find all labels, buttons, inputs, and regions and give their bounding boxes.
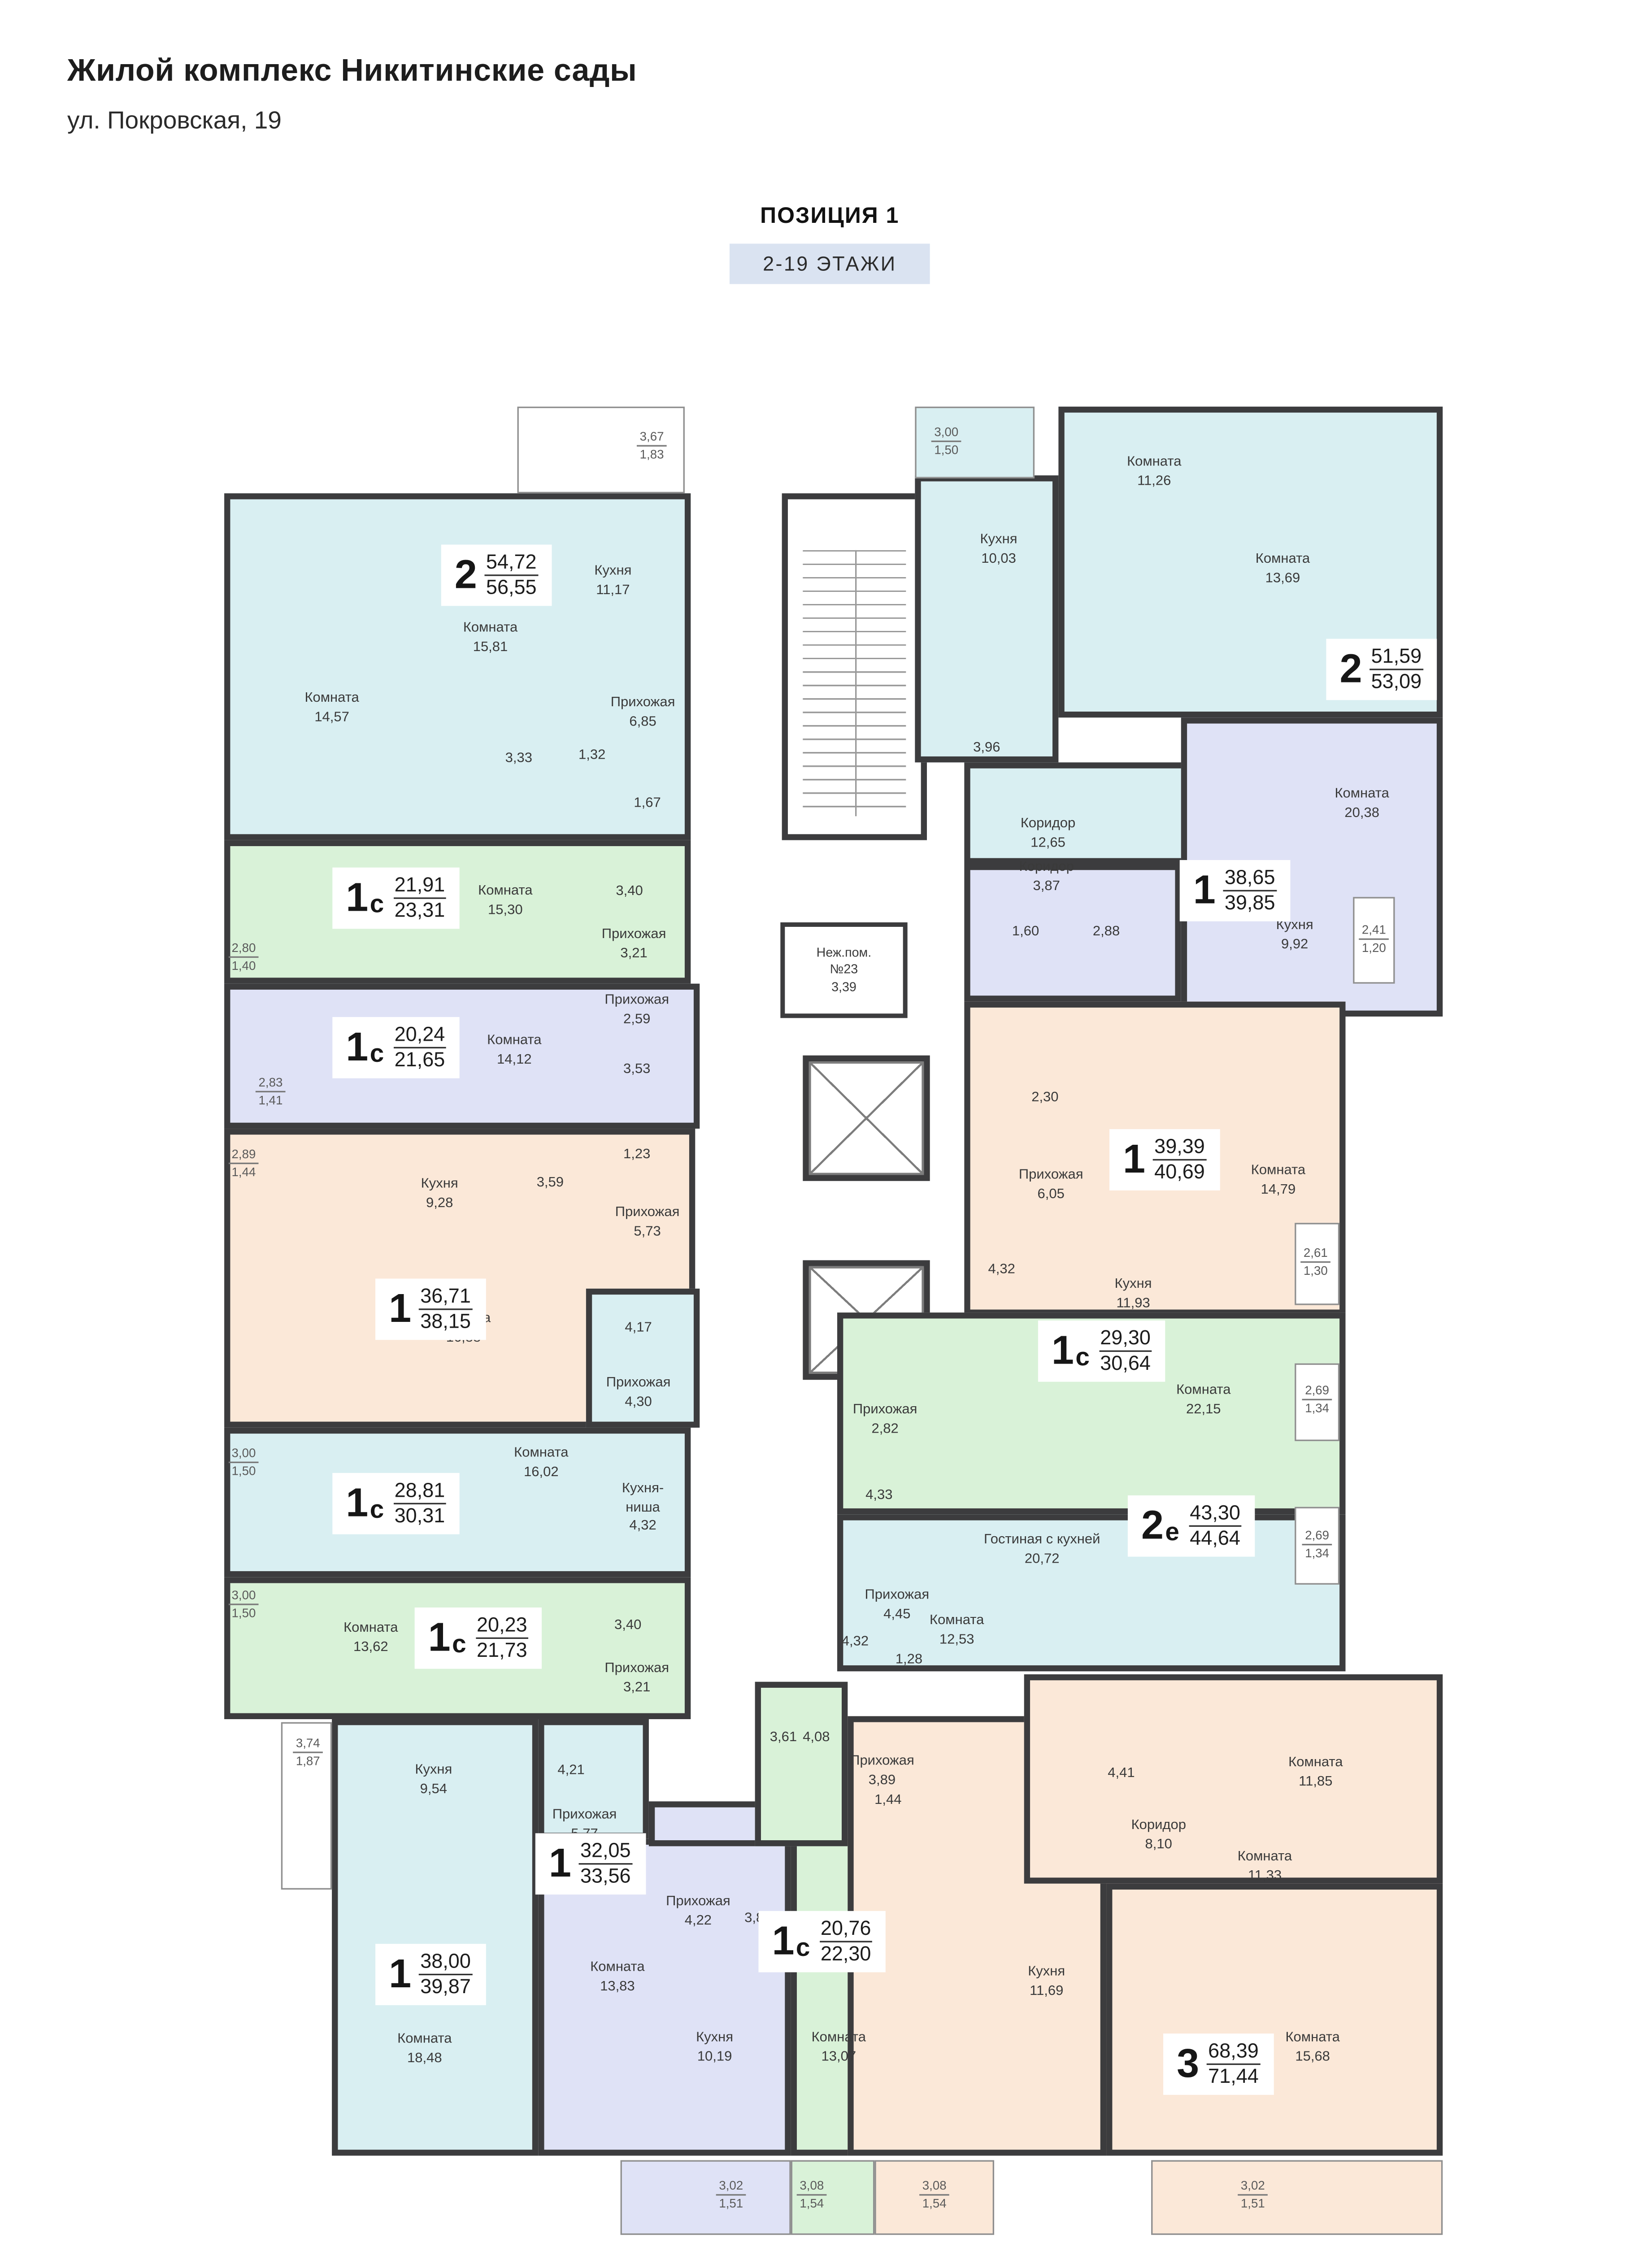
area-fraction: 54,7256,55 [485, 551, 538, 600]
area-fraction: 20,2421,65 [393, 1023, 446, 1073]
room-area: 1,23 [623, 1145, 650, 1164]
room-area: 3,33 [505, 748, 532, 767]
room-label: Прихожая5,73 [615, 1203, 680, 1240]
room-area: 10,19 [696, 2046, 733, 2065]
room-name: Комната [478, 881, 532, 900]
room-name: Комната [304, 688, 359, 707]
room-label: Кухня11,17 [594, 561, 631, 599]
room-label: Кухня10,19 [696, 2028, 733, 2065]
room-name: Кухня [696, 2028, 733, 2046]
room-name: Комната [463, 618, 517, 637]
balcony-area-label: 3,001,50 [229, 1587, 259, 1621]
room-name: Кухня- ниша [622, 1479, 664, 1516]
total-area-value: 44,64 [1188, 1527, 1242, 1551]
room-area: 8,10 [1131, 1834, 1186, 1853]
room-area: 22,15 [1176, 1399, 1230, 1418]
apartment-region-9[interactable] [755, 1682, 848, 1847]
apartment-type-suffix: с [796, 1934, 810, 1967]
balcony-area-label: 3,021,51 [1238, 2178, 1268, 2212]
room-name: Комната [397, 2029, 452, 2048]
apartment-type-suffix: с [1075, 1343, 1090, 1376]
apartment-type-label: 1 [346, 878, 367, 919]
room-area: 11,17 [594, 580, 631, 599]
balcony-area-reduced: 1,44 [229, 1164, 259, 1180]
area-fraction: 39,3940,69 [1153, 1135, 1206, 1185]
floor-plan: Неж.пом. №23 3,39 254,7256,55Кухня11,17К… [0, 0, 1652, 2242]
balcony-area-label: 3,081,54 [797, 2178, 827, 2212]
area-fraction: 51,5953,09 [1369, 645, 1423, 695]
balcony-area-label: 2,801,40 [229, 940, 259, 973]
room-area: 2,82 [853, 1419, 917, 1438]
room-area: 14,57 [304, 707, 359, 726]
total-area-value: 39,87 [419, 1976, 472, 2000]
apartment-typebox: 1с21,9123,31 [332, 868, 460, 930]
balcony-area-reduced: 1,87 [293, 1753, 323, 1769]
room-area: 4,17 [625, 1318, 652, 1337]
area-label: 2,88 [1093, 922, 1120, 941]
living-area-value: 39,39 [1153, 1135, 1206, 1160]
room-area: 16,02 [514, 1462, 568, 1481]
area-fraction: 21,9123,31 [393, 873, 446, 923]
room-area: 2,30 [1031, 1088, 1058, 1107]
room-label: Прихожая3,21 [604, 1659, 669, 1696]
apartment-typebox: 138,6539,85 [1180, 860, 1290, 922]
room-label: Комната16,02 [514, 1443, 568, 1481]
room-area: 1,44 [874, 1790, 901, 1809]
room-area: 1,67 [634, 793, 661, 812]
room-label: Комната13,83 [590, 1958, 644, 1995]
living-area-value: 43,30 [1188, 1501, 1242, 1527]
living-area-value: 38,65 [1223, 866, 1277, 891]
room-label: Комната13,07 [812, 2028, 866, 2065]
room-area: 4,22 [666, 1911, 730, 1929]
room-area: 11,85 [1288, 1772, 1343, 1790]
area-label: 1,60 [1012, 922, 1039, 941]
room-area: 4,41 [1108, 1764, 1135, 1782]
room-label: Прихожая4,22 [666, 1892, 730, 1929]
apartment-type-label: 2 [455, 556, 476, 596]
total-area-value: 71,44 [1207, 2065, 1260, 2090]
total-area-value: 30,64 [1099, 1352, 1152, 1377]
living-area-value: 21,91 [393, 873, 446, 899]
living-area-value: 29,30 [1099, 1326, 1152, 1352]
total-area-value: 22,30 [819, 1942, 872, 1967]
apartment-type-label: 1 [1123, 1140, 1144, 1180]
balcony-area-reduced: 1,50 [229, 1605, 259, 1621]
living-area-value: 68,39 [1207, 2039, 1260, 2065]
total-area-value: 33,56 [579, 1865, 632, 1889]
area-label: 3,33 [505, 748, 532, 767]
balcony-area-full: 3,08 [797, 2178, 827, 2195]
total-area-value: 30,31 [393, 1505, 446, 1529]
apartment-typebox: 132,0533,56 [535, 1833, 646, 1895]
room-area: 3,61 [770, 1728, 797, 1747]
balcony-area-label: 2,891,44 [229, 1146, 259, 1180]
room-area: 13,62 [343, 1637, 398, 1656]
room-label: Гостиная с кухней20,72 [984, 1530, 1100, 1568]
apartment-typebox: 139,3940,69 [1109, 1129, 1220, 1191]
total-area-value: 56,55 [485, 576, 538, 600]
room-label: Комната13,69 [1256, 549, 1310, 587]
living-area-value: 20,24 [393, 1023, 446, 1048]
balcony-area-label: 3,001,50 [229, 1445, 259, 1479]
room-name: Прихожая [865, 1585, 930, 1604]
living-area-value: 51,59 [1369, 645, 1423, 670]
room-name: Гостиная с кухней [984, 1530, 1100, 1549]
room-area: 1,28 [896, 1650, 922, 1669]
area-label: 3,61 [770, 1728, 797, 1747]
total-area-value: 40,69 [1153, 1161, 1206, 1185]
apartment-type-label: 1 [428, 1618, 449, 1659]
room-label: Комната11,26 [1127, 452, 1181, 490]
balcony-area-label: 2,691,34 [1302, 1382, 1332, 1416]
room-area: 15,68 [1285, 2046, 1339, 2065]
apartment-type-suffix: е [1165, 1518, 1179, 1551]
area-label: 2,30 [1031, 1088, 1058, 1107]
room-name: Кухня [980, 530, 1017, 549]
area-label: 4,08 [803, 1728, 830, 1747]
balcony-area-reduced: 1,34 [1302, 1400, 1332, 1416]
apartment-region-10[interactable] [1024, 1674, 1443, 1884]
total-area-value: 39,85 [1223, 892, 1277, 916]
apartment-typebox: 254,7256,55 [441, 545, 552, 607]
room-name: Комната [1251, 1161, 1305, 1180]
room-name: Комната [514, 1443, 568, 1462]
room-name: Комната [1238, 1847, 1292, 1866]
balcony-area-reduced: 1,30 [1300, 1262, 1330, 1278]
room-area: 1,32 [578, 746, 605, 765]
area-label: 4,32 [988, 1260, 1015, 1279]
area-label: 1,67 [634, 793, 661, 812]
room-area: 3,87 [1019, 876, 1074, 895]
room-name: Комната [930, 1611, 984, 1629]
room-label: Прихожая6,85 [611, 693, 675, 730]
room-area: 13,83 [590, 1976, 644, 1995]
room-area: 4,45 [865, 1604, 930, 1623]
room-area: 3,53 [623, 1060, 650, 1078]
room-label: Кухня11,93 [1115, 1274, 1152, 1312]
apartment-type-suffix: с [370, 891, 384, 923]
nonres-label: Неж.пом. [817, 944, 872, 959]
room-name: Прихожая [606, 1373, 671, 1392]
area-label: 3,96 [973, 738, 1000, 757]
room-name: Кухня [594, 561, 631, 580]
living-area-value: 32,05 [579, 1839, 632, 1865]
apartment-type-label: 1 [346, 1484, 367, 1524]
room-label: Комната11,85 [1288, 1753, 1343, 1790]
room-area: 9,28 [421, 1193, 458, 1212]
area-label: 1,23 [623, 1145, 650, 1164]
balcony-area-full: 3,67 [637, 429, 667, 446]
room-area: 18,48 [397, 2048, 452, 2067]
apartment-typebox: 1с28,8130,31 [332, 1473, 460, 1535]
room-label: Коридор12,65 [1021, 814, 1075, 852]
room-name: Комната [1127, 452, 1181, 471]
total-area-value: 38,15 [419, 1310, 472, 1334]
room-name: Коридор [1021, 814, 1075, 833]
total-area-value: 21,65 [393, 1049, 446, 1073]
balcony-area-reduced: 1,34 [1302, 1545, 1332, 1561]
room-area: 15,81 [463, 637, 517, 656]
area-label: 4,33 [865, 1486, 892, 1504]
room-area: 12,53 [930, 1629, 984, 1648]
balcony [1151, 2160, 1443, 2235]
room-label: Комната13,62 [343, 1618, 398, 1656]
room-area: 5,73 [615, 1221, 680, 1240]
area-label: 1,28 [896, 1650, 922, 1669]
living-area-value: 28,81 [393, 1479, 446, 1504]
room-area: 4,08 [803, 1728, 830, 1747]
balcony-area-full: 3,08 [919, 2178, 949, 2195]
area-label: 4,41 [1108, 1764, 1135, 1782]
room-name: Прихожая [602, 925, 666, 943]
room-name: Комната [1256, 549, 1310, 568]
apartment-typebox: 1с20,2421,65 [332, 1017, 460, 1079]
room-name: Комната [590, 1958, 644, 1977]
area-fraction: 20,7622,30 [819, 1917, 872, 1967]
apartment-type-label: 1 [346, 1028, 367, 1068]
apartment-typebox: 1с20,7622,30 [758, 1911, 886, 1973]
elevator-shaft-icon [803, 1056, 930, 1181]
apartment-typebox: 1с20,2321,73 [415, 1608, 542, 1669]
apartment-region-10[interactable] [1106, 1884, 1443, 2156]
total-area-value: 23,31 [393, 899, 446, 923]
area-fraction: 32,0533,56 [579, 1839, 632, 1889]
room-label: Кухня9,54 [415, 1760, 452, 1798]
apartment-type-label: 1 [1052, 1331, 1073, 1372]
apartment-type-suffix: с [370, 1496, 384, 1529]
room-area: 4,32 [622, 1516, 664, 1535]
total-area-value: 53,09 [1369, 670, 1423, 695]
room-label: Прихожая3,21 [602, 925, 666, 962]
balcony-area-reduced: 1,40 [229, 957, 259, 973]
room-label: Кухня9,28 [421, 1174, 458, 1212]
area-label: 4,17 [625, 1318, 652, 1337]
room-label: Комната22,15 [1176, 1381, 1230, 1418]
area-label: 4,21 [557, 1760, 584, 1779]
apartment-type-label: 2 [1141, 1506, 1162, 1547]
room-area: 15,30 [478, 900, 532, 919]
balcony-area-full: 3,00 [229, 1587, 259, 1605]
room-area: 20,38 [1335, 803, 1389, 821]
room-name: Комната [812, 2028, 866, 2046]
balcony-area-label: 2,611,30 [1300, 1245, 1330, 1278]
room-area: 3,96 [973, 738, 1000, 757]
room-name: Комната [1176, 1381, 1230, 1399]
apartment-type-label: 3 [1177, 2044, 1198, 2085]
area-fraction: 38,0039,87 [419, 1950, 472, 1999]
balcony-area-label: 2,691,34 [1302, 1527, 1332, 1561]
room-name: Комната [1285, 2028, 1339, 2046]
room-label: Комната11,33 [1238, 1847, 1292, 1885]
room-name: Комната [343, 1618, 398, 1637]
balcony-area-full: 2,41 [1359, 922, 1389, 939]
room-area: 12,65 [1021, 833, 1075, 852]
total-area-value: 21,73 [475, 1639, 529, 1664]
nonres-area: 3,39 [831, 979, 856, 994]
balcony-area-label: 3,741,87 [293, 1735, 323, 1769]
room-name: Прихожая [611, 693, 675, 712]
living-area-value: 20,76 [819, 1917, 872, 1942]
room-label: Прихожая2,82 [853, 1400, 917, 1438]
room-area: 11,26 [1127, 471, 1181, 490]
room-label: Прихожая6,05 [1019, 1165, 1083, 1203]
apartment-type-label: 1 [1193, 871, 1214, 911]
balcony-area-full: 3,02 [1238, 2178, 1268, 2195]
room-area: 11,69 [1028, 1981, 1065, 1999]
stairwell [782, 493, 927, 840]
area-label: 3,53 [623, 1060, 650, 1078]
living-area-value: 20,23 [475, 1613, 529, 1639]
room-area: 20,72 [984, 1549, 1100, 1568]
nonres-number: №23 [830, 961, 858, 976]
living-area-value: 38,00 [419, 1950, 472, 1975]
room-label: Комната15,68 [1285, 2028, 1339, 2065]
apartment-type-label: 1 [772, 1922, 793, 1962]
balcony-area-reduced: 1,51 [716, 2195, 746, 2212]
room-area: 4,33 [865, 1486, 892, 1504]
room-label: Прихожая4,30 [606, 1373, 671, 1411]
balcony-area-reduced: 1,50 [229, 1463, 259, 1479]
balcony-area-full: 3,74 [293, 1735, 323, 1753]
room-name: Прихожая [1019, 1165, 1083, 1184]
apartment-typebox: 368,3971,44 [1163, 2033, 1274, 2095]
room-name: Комната [487, 1031, 541, 1050]
nonresidential-room: Неж.пом. №23 3,39 [780, 922, 907, 1018]
apartment-region-11[interactable] [915, 475, 1058, 762]
room-name: Кухня [415, 1760, 452, 1779]
area-fraction: 68,3971,44 [1207, 2039, 1260, 2089]
room-label: Прихожая3,89 [850, 1751, 914, 1789]
room-label: Коридор8,10 [1131, 1816, 1186, 1853]
balcony-area-label: 3,001,50 [931, 424, 961, 458]
room-area: 3,21 [602, 943, 666, 962]
balcony-area-full: 2,89 [229, 1146, 259, 1164]
room-area: 11,33 [1238, 1866, 1292, 1885]
room-area: 4,21 [557, 1760, 584, 1779]
apartment-type-label: 1 [389, 1955, 410, 1995]
area-label: 1,32 [578, 746, 605, 765]
room-name: Прихожая [853, 1400, 917, 1419]
room-label: Прихожая2,59 [604, 991, 669, 1028]
room-name: Прихожая [552, 1805, 617, 1824]
area-fraction: 20,2321,73 [475, 1613, 529, 1663]
apartment-type-label: 1 [549, 1844, 570, 1884]
area-label: 1,44 [874, 1790, 901, 1809]
room-area: 14,12 [487, 1049, 541, 1068]
room-area: 6,05 [1019, 1184, 1083, 1203]
room-area: 10,03 [980, 549, 1017, 568]
balcony-area-full: 2,61 [1300, 1245, 1330, 1262]
room-area: 11,93 [1115, 1293, 1152, 1312]
balcony-area-reduced: 1,50 [931, 442, 961, 458]
room-name: Кухня [1028, 1962, 1065, 1981]
apartment-typebox: 2е43,3044,64 [1128, 1495, 1255, 1557]
area-fraction: 36,7138,15 [419, 1285, 472, 1334]
room-label: Коридор3,87 [1019, 857, 1074, 895]
room-label: Комната15,81 [463, 618, 517, 656]
balcony-area-full: 3,02 [716, 2178, 746, 2195]
room-name: Прихожая [604, 991, 669, 1009]
balcony-area-full: 2,80 [229, 940, 259, 957]
balcony-area-full: 2,69 [1302, 1527, 1332, 1545]
balcony-area-label: 2,831,41 [256, 1074, 286, 1108]
balcony-area-reduced: 1,83 [637, 446, 667, 462]
balcony [621, 2160, 791, 2235]
apartment-type-suffix: с [370, 1040, 384, 1073]
room-area: 1,60 [1012, 922, 1039, 941]
room-area: 2,59 [604, 1009, 669, 1028]
area-label: 4,32 [842, 1632, 869, 1651]
apartment-type-suffix: с [452, 1630, 466, 1663]
apartment-type-label: 2 [1339, 650, 1361, 690]
room-label: Комната18,48 [397, 2029, 452, 2067]
apartment-typebox: 138,0039,87 [375, 1944, 486, 2006]
room-label: Комната14,12 [487, 1031, 541, 1069]
room-label: Комната14,57 [304, 688, 359, 726]
room-area: 13,07 [812, 2046, 866, 2065]
room-name: Прихожая [615, 1203, 680, 1221]
area-fraction: 38,6539,85 [1223, 866, 1277, 916]
area-label: 3,40 [614, 1616, 641, 1634]
room-label: Кухня11,69 [1028, 1962, 1065, 2000]
room-label: Кухня- ниша4,32 [622, 1479, 664, 1535]
room-name: Кухня [421, 1174, 458, 1193]
room-name: Прихожая [850, 1751, 914, 1770]
room-name: Кухня [1115, 1274, 1152, 1293]
room-area: 3,59 [537, 1173, 564, 1192]
room-label: Прихожая4,45 [865, 1585, 930, 1623]
living-area-value: 54,72 [485, 551, 538, 576]
area-label: 3,40 [616, 882, 643, 900]
room-name: Комната [1288, 1753, 1343, 1772]
living-area-value: 36,71 [419, 1285, 472, 1310]
balcony-area-label: 2,411,20 [1359, 922, 1389, 956]
area-fraction: 28,8130,31 [393, 1479, 446, 1529]
room-area: 9,54 [415, 1779, 452, 1798]
room-name: Коридор [1019, 857, 1074, 876]
page: Жилой комплекс Никитинские сады ул. Покр… [0, 0, 1652, 2242]
balcony-area-reduced: 1,51 [1238, 2195, 1268, 2212]
room-area: 4,32 [988, 1260, 1015, 1279]
room-area: 4,32 [842, 1632, 869, 1651]
room-area: 14,79 [1251, 1179, 1305, 1198]
balcony-area-full: 3,00 [931, 424, 961, 442]
balcony-area-label: 3,081,54 [919, 2178, 949, 2212]
room-label: Кухня10,03 [980, 530, 1017, 568]
room-area: 3,40 [614, 1616, 641, 1634]
room-label: Комната20,38 [1335, 784, 1389, 821]
room-area: 9,92 [1276, 934, 1313, 953]
room-area: 3,40 [616, 882, 643, 900]
balcony-area-label: 3,671,83 [637, 429, 667, 462]
balcony-area-reduced: 1,54 [797, 2195, 827, 2212]
room-label: Комната12,53 [930, 1611, 984, 1648]
apartment-typebox: 251,5953,09 [1326, 639, 1436, 701]
room-area: 4,30 [606, 1392, 671, 1411]
room-area: 6,85 [611, 712, 675, 730]
apartment-typebox: 1с29,3030,64 [1038, 1321, 1165, 1382]
room-label: Комната14,79 [1251, 1161, 1305, 1199]
balcony-area-reduced: 1,41 [256, 1092, 286, 1108]
balcony-area-full: 3,00 [229, 1445, 259, 1463]
stairs-icon [803, 550, 906, 816]
apartment-type-label: 1 [389, 1289, 410, 1330]
room-name: Коридор [1131, 1816, 1186, 1834]
room-area: 13,69 [1256, 568, 1310, 587]
room-area: 3,21 [604, 1677, 669, 1696]
area-fraction: 29,3030,64 [1099, 1326, 1152, 1376]
